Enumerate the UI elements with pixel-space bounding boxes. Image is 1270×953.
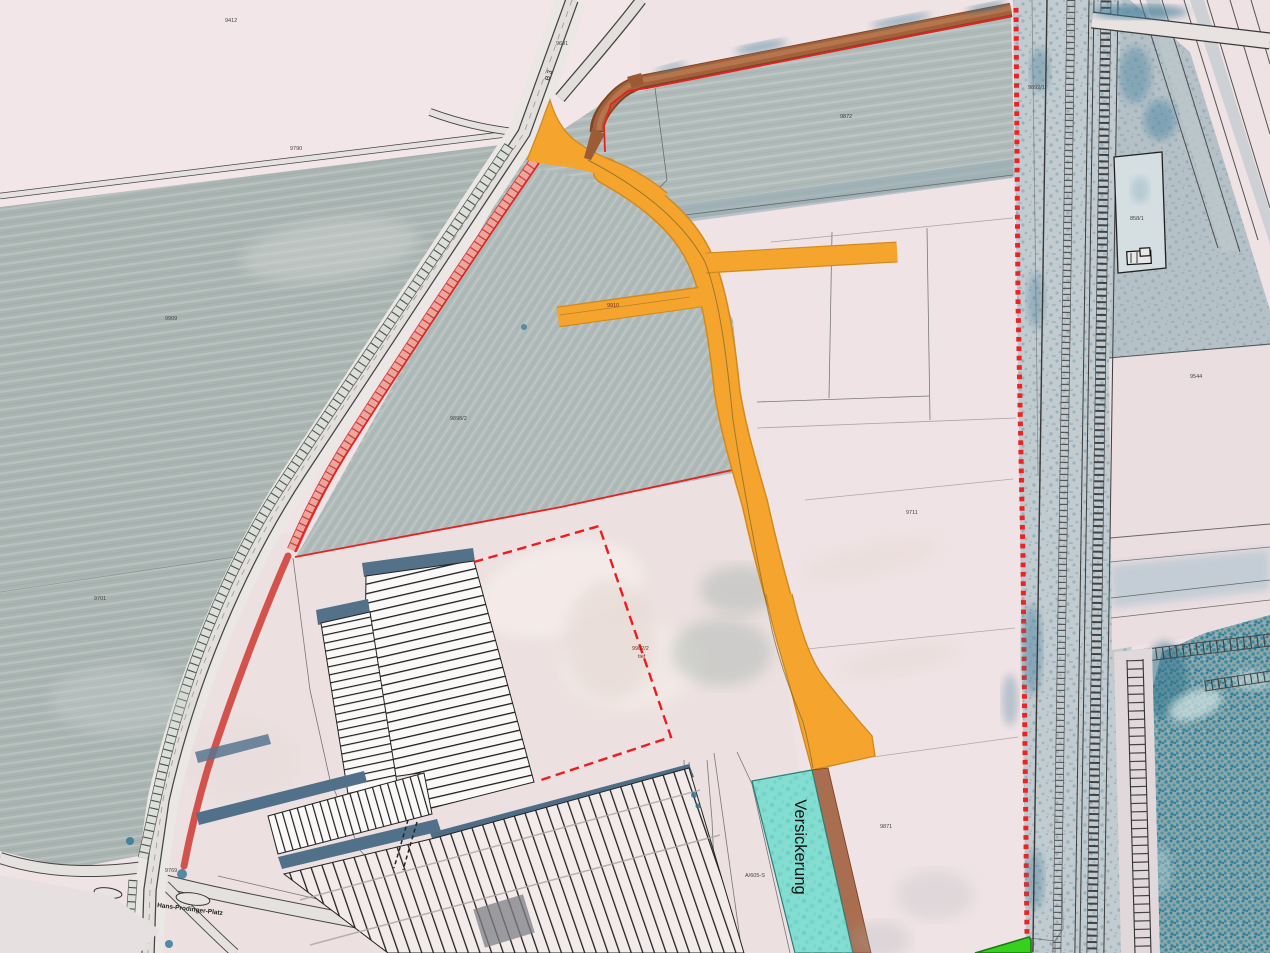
svg-text:A/605-S: A/605-S [745,873,765,879]
svg-text:9898/2: 9898/2 [450,416,467,422]
svg-text:9892/1: 9892/1 [1028,85,1045,91]
svg-text:9902/2: 9902/2 [632,646,649,652]
svg-text:9910: 9910 [607,303,619,309]
svg-text:9691: 9691 [556,41,568,47]
svg-text:9909: 9909 [165,316,177,322]
svg-text:9769: 9769 [165,868,177,874]
svg-text:Versickerung: Versickerung [791,799,809,894]
svg-text:9872: 9872 [840,114,852,120]
svg-text:9544: 9544 [1190,374,1202,380]
svg-text:tief: tief [638,654,646,660]
svg-text:858/1: 858/1 [1130,216,1144,222]
svg-text:9412: 9412 [225,18,237,24]
svg-text:9790: 9790 [290,146,302,152]
svg-text:9711: 9711 [906,510,918,516]
svg-text:9871: 9871 [880,824,892,830]
svg-text:9701: 9701 [94,596,106,602]
